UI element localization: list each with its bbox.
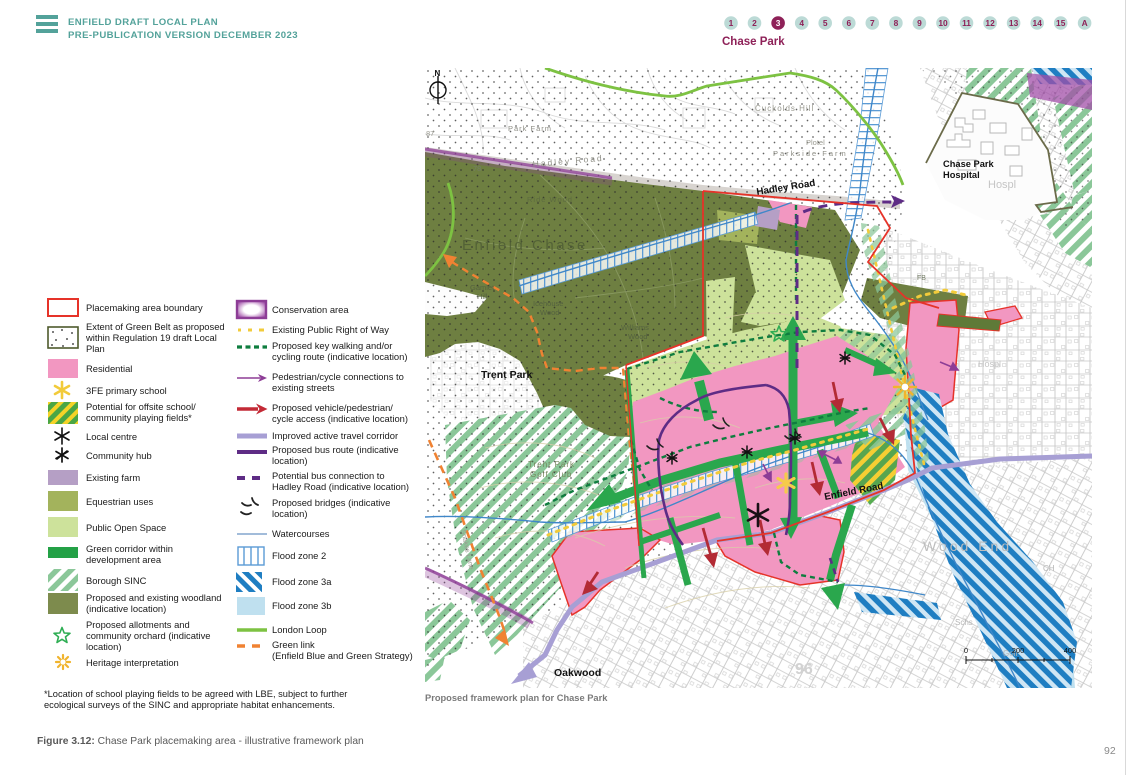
svg-text:Chase Park: Chase Park (943, 159, 994, 169)
svg-text:Williams: Williams (621, 323, 649, 332)
svg-text:Existing Public Right of Way: Existing Public Right of Way (272, 324, 389, 335)
svg-text:78: 78 (473, 164, 481, 173)
svg-text:London Loop: London Loop (272, 624, 327, 635)
svg-text:Extent of Green Belt as propos: Extent of Green Belt as proposed (86, 321, 225, 332)
svg-text:Hadley Road (indicative locati: Hadley Road (indicative location) (272, 481, 409, 492)
svg-text:within Regulation 19 draft Loc: within Regulation 19 draft Local (85, 332, 217, 343)
svg-text:Existing farm: Existing farm (86, 472, 140, 483)
svg-text:400: 400 (1064, 646, 1077, 655)
svg-text:Cuckolds Hill: Cuckolds Hill (755, 104, 814, 113)
svg-text:Residential: Residential (86, 363, 132, 374)
svg-text:(Enfield Blue and Green Strate: (Enfield Blue and Green Strategy) (272, 650, 413, 661)
svg-text:14: 14 (1033, 18, 1043, 28)
svg-text:96: 96 (795, 661, 813, 678)
svg-text:12: 12 (985, 18, 995, 28)
svg-text:0: 0 (964, 646, 968, 655)
svg-text:87: 87 (426, 129, 434, 138)
svg-text:Schs: Schs (955, 618, 973, 627)
svg-text:11: 11 (962, 18, 971, 28)
svg-text:Proposed bridges (indicative: Proposed bridges (indicative (272, 497, 390, 508)
svg-text:location): location) (272, 508, 307, 519)
svg-text:community playing fields*: community playing fields* (86, 412, 192, 423)
svg-text:200: 200 (1012, 646, 1025, 655)
svg-text:Borough SINC: Borough SINC (86, 575, 147, 586)
svg-text:Placemaking area boundary: Placemaking area boundary (86, 302, 203, 313)
svg-text:Community hub: Community hub (86, 450, 152, 461)
svg-text:Flood zone 3a: Flood zone 3a (272, 576, 332, 587)
svg-text:4: 4 (799, 18, 804, 28)
svg-text:Potential for offsite school/: Potential for offsite school/ (86, 401, 196, 412)
svg-text:Plotel: Plotel (806, 138, 825, 147)
svg-text:8: 8 (894, 18, 899, 28)
svg-text:Hospital: Hospital (943, 170, 980, 180)
svg-text:Green corridor within: Green corridor within (86, 543, 173, 554)
svg-text:3: 3 (776, 18, 781, 28)
svg-text:Plan: Plan (86, 343, 105, 354)
svg-text:Parkside Farm: Parkside Farm (773, 149, 848, 158)
svg-text:Proposed bus route (indicative: Proposed bus route (indicative (272, 444, 399, 455)
svg-text:Hill: Hill (477, 292, 488, 301)
svg-text:9: 9 (917, 18, 922, 28)
svg-text:1: 1 (729, 18, 734, 28)
svg-text:10: 10 (938, 18, 948, 28)
svg-text:location): location) (86, 641, 121, 652)
svg-text:N: N (435, 69, 441, 78)
svg-text:Oakwood: Oakwood (554, 667, 601, 679)
svg-text:Green link: Green link (272, 639, 315, 650)
svg-text:development area: development area (86, 554, 162, 565)
svg-text:Equestrian uses: Equestrian uses (86, 496, 154, 507)
svg-text:Wood: Wood (628, 332, 647, 341)
svg-text:Local centre: Local centre (86, 431, 137, 442)
svg-text:3FE primary school: 3FE primary school (86, 385, 167, 396)
svg-text:FB: FB (917, 275, 926, 282)
svg-text:Proposed vehicle/pedestrian/: Proposed vehicle/pedestrian/ (272, 402, 393, 413)
svg-text:Proposed key walking and/or: Proposed key walking and/or (272, 340, 392, 351)
svg-text:Public Open Space: Public Open Space (86, 522, 166, 533)
svg-text:5: 5 (823, 18, 828, 28)
svg-text:Ride Wood: Ride Wood (527, 195, 573, 204)
svg-text:Hospl: Hospl (988, 179, 1016, 191)
svg-text:15: 15 (1056, 18, 1066, 28)
svg-text:Proposed allotments and: Proposed allotments and (86, 619, 190, 630)
svg-text:A: A (1082, 18, 1088, 28)
svg-text:7: 7 (870, 18, 875, 28)
svg-text:Park Farm: Park Farm (508, 124, 552, 133)
svg-text:Wood End: Wood End (923, 538, 1012, 554)
svg-text:CH: CH (1043, 564, 1055, 573)
svg-text:Watercourses: Watercourses (272, 528, 330, 539)
svg-text:Improved active travel corrido: Improved active travel corridor (272, 430, 398, 441)
svg-text:existing streets: existing streets (272, 382, 335, 393)
svg-text:cycling route (indicative loca: cycling route (indicative location) (272, 351, 407, 362)
svg-text:Heritage interpretation: Heritage interpretation (86, 657, 179, 668)
svg-text:Flood zone 3b: Flood zone 3b (272, 600, 331, 611)
svg-text:location): location) (272, 455, 307, 466)
svg-text:community orchard (indicative: community orchard (indicative (86, 630, 211, 641)
svg-text:Icehouse: Icehouse (533, 299, 563, 308)
svg-text:Wood: Wood (540, 308, 559, 317)
svg-text:Conservation area: Conservation area (272, 304, 349, 315)
svg-text:Proposed and existing woodland: Proposed and existing woodland (86, 592, 222, 603)
svg-text:Hospl: Hospl (978, 359, 1001, 369)
svg-text:Golf Club: Golf Club (530, 470, 572, 479)
svg-text:6: 6 (846, 18, 851, 28)
svg-text:Gamlet: Gamlet (470, 283, 495, 292)
svg-text:Flood zone 2: Flood zone 2 (272, 550, 326, 561)
svg-text:Enfield Chase: Enfield Chase (462, 237, 588, 254)
svg-text:Trent Park: Trent Park (481, 369, 533, 381)
svg-text:13: 13 (1009, 18, 1019, 28)
svg-text:(indicative location): (indicative location) (86, 603, 166, 614)
svg-text:2: 2 (752, 18, 757, 28)
svg-text:Potential bus connection to: Potential bus connection to (272, 470, 385, 481)
svg-text:Pedestrian/cycle connections t: Pedestrian/cycle connections to (272, 371, 404, 382)
svg-text:Trent Park: Trent Park (528, 460, 575, 469)
svg-text:cycle access (indicative locat: cycle access (indicative location) (272, 413, 408, 424)
